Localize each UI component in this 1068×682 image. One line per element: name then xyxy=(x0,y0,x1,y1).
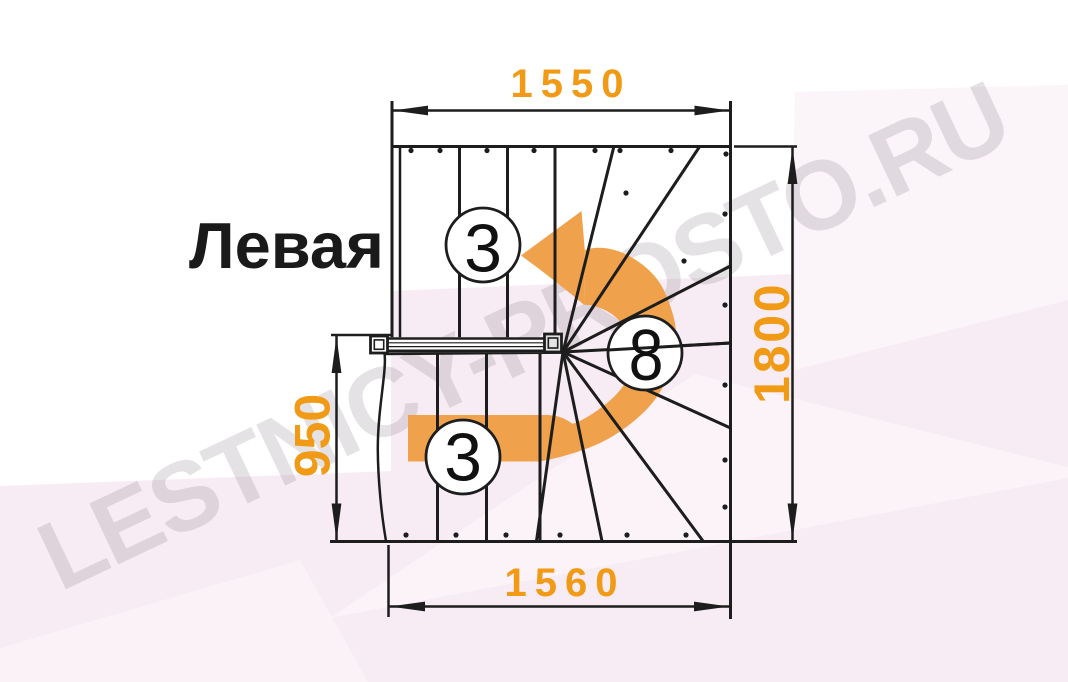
svg-text:1550: 1550 xyxy=(511,62,632,106)
svg-text:3: 3 xyxy=(464,211,502,287)
svg-text:Левая: Левая xyxy=(189,209,384,282)
svg-text:3: 3 xyxy=(444,420,482,496)
svg-text:1560: 1560 xyxy=(505,561,626,605)
svg-text:8: 8 xyxy=(629,316,664,396)
svg-text:950: 950 xyxy=(285,394,341,477)
svg-text:1800: 1800 xyxy=(744,282,800,404)
